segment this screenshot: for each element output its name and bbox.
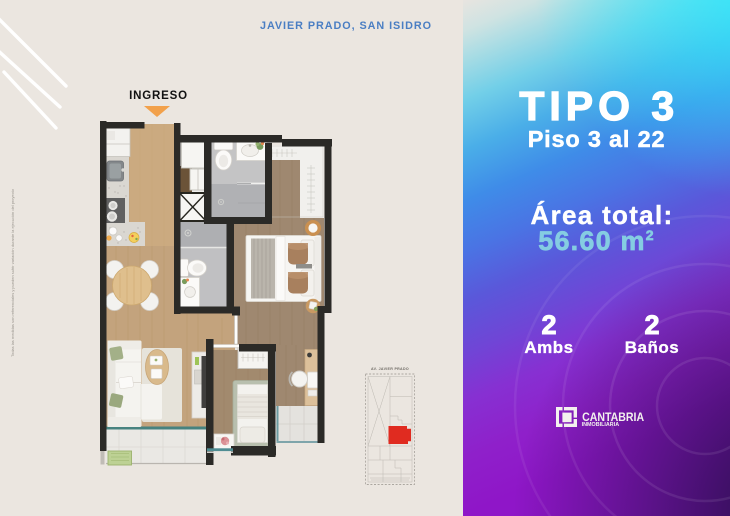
svg-text:Todas las medidas son referenc: Todas las medidas son referenciales y pu… xyxy=(10,188,15,357)
svg-text:INMOBILIARIA: INMOBILIARIA xyxy=(581,421,619,427)
svg-text:AV. JAVIER PRADO: AV. JAVIER PRADO xyxy=(371,367,409,371)
